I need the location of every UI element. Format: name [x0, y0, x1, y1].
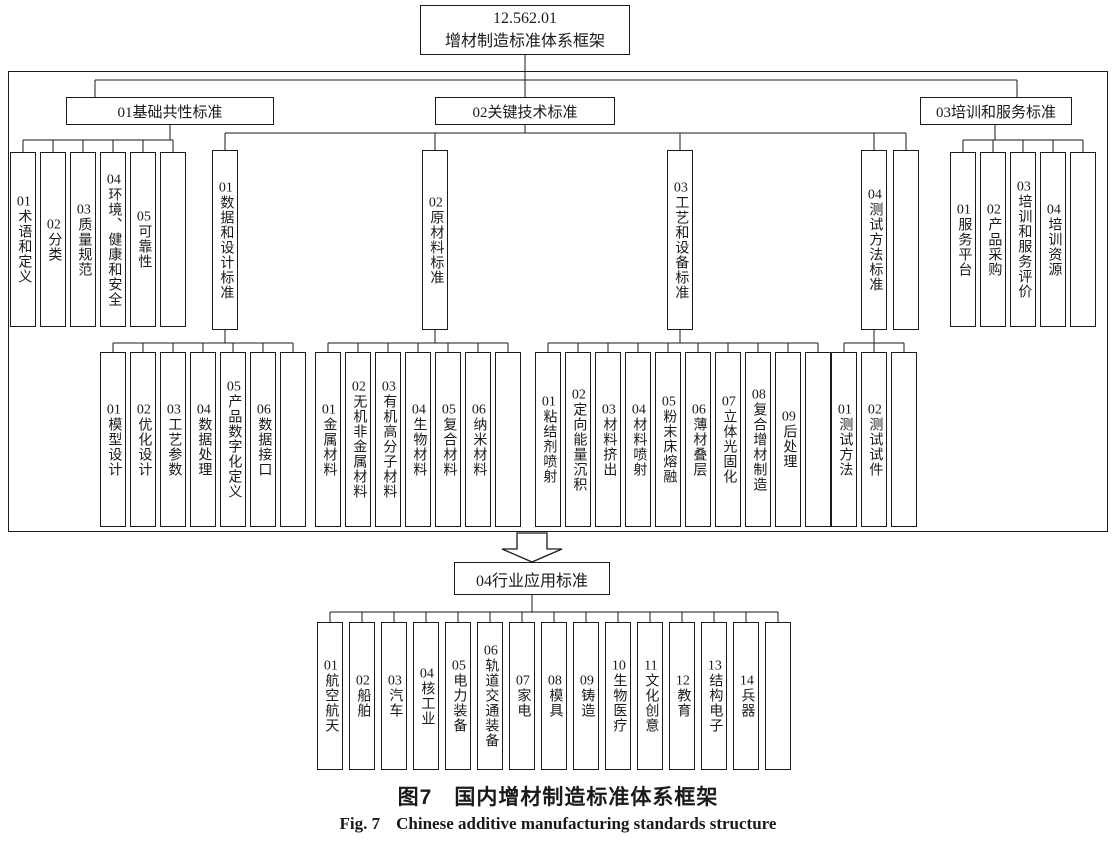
tree-node-box: 05复合材料: [435, 352, 461, 527]
node-number: 02: [428, 196, 443, 210]
node-label: 复合材料: [441, 417, 456, 477]
caption-chinese: 图7国内增材制造标准体系框架: [0, 781, 1116, 811]
tree-node-box: 02原材料标准: [422, 150, 448, 330]
node-label: 轨道交通装备: [483, 658, 498, 748]
tree-node-box: 09铸造: [573, 622, 599, 770]
node-label: 培训资源: [1046, 217, 1061, 277]
node-label: 立体光固化: [721, 409, 736, 484]
node-number: 05: [226, 380, 241, 394]
tree-node-box: 11文化创意: [637, 622, 663, 770]
node-number: 03: [673, 181, 688, 195]
node-label: 可靠性: [136, 224, 151, 269]
node-label: 无机非金属材料: [351, 394, 366, 499]
tree-node-box: 01粘结剂喷射: [535, 352, 561, 527]
tree-node-box: [280, 352, 306, 527]
tree-node-box: 07立体光固化: [715, 352, 741, 527]
node-number: 04: [867, 188, 882, 202]
node-label: 教育: [675, 688, 690, 718]
root-node: 12.562.01 增材制造标准体系框架: [420, 5, 630, 55]
node-label: 材料挤出: [601, 417, 616, 477]
node-label: 核工业: [419, 681, 434, 726]
node-label: 数据和设计标准: [218, 195, 233, 300]
node-label: 材料喷射: [631, 417, 646, 477]
tree-node-box: [765, 622, 791, 770]
node-label: 船舶: [355, 688, 370, 718]
node-number: 01: [956, 203, 971, 217]
tree-node-box: [891, 352, 917, 527]
node-number: 05: [441, 403, 456, 417]
tree-node-box: 04数据处理: [190, 352, 216, 527]
caption-zh-tag: 图7: [398, 786, 433, 809]
node-number: 01: [321, 403, 336, 417]
tree-node-box: 01模型设计: [100, 352, 126, 527]
node-number: 04: [411, 403, 426, 417]
node-label: 测试试件: [867, 417, 882, 477]
down-arrow-icon: [502, 533, 562, 562]
node-label: 薄材叠层: [691, 417, 706, 477]
root-code: 12.562.01: [493, 7, 557, 30]
caption-zh-title: 国内增材制造标准体系框架: [454, 786, 718, 809]
tree-node-box: 10生物医疗: [605, 622, 631, 770]
node-label: 家电: [515, 688, 530, 718]
node-label: 汽车: [387, 688, 402, 718]
tree-node-box: 01术语和定义: [10, 152, 36, 327]
tree-node-box: 08模具: [541, 622, 567, 770]
tree-node-box: 06数据接口: [250, 352, 276, 527]
node-label: 质量规范: [76, 217, 91, 277]
tree-node-box: 02分类: [40, 152, 66, 327]
tree-node-box: 06薄材叠层: [685, 352, 711, 527]
node-label: 复合增材制造: [751, 402, 766, 492]
node-label: 后处理: [781, 424, 796, 469]
node-number: 02: [355, 674, 370, 688]
node-label: 数据接口: [256, 417, 271, 477]
node-number: 06: [256, 403, 271, 417]
tree-node-box: 04生物材料: [405, 352, 431, 527]
node-label: 模具: [547, 688, 562, 718]
tree-node-box: 03有机高分子材料: [375, 352, 401, 527]
industry-application-header: 04行业应用标准: [454, 562, 610, 595]
node-label: 粘结剂喷射: [541, 409, 556, 484]
root-title: 增材制造标准体系框架: [445, 30, 605, 53]
tree-node-box: 04材料喷射: [625, 352, 651, 527]
tree-node-box: 05粉末床熔融: [655, 352, 681, 527]
node-label: 环境、健康和安全: [106, 187, 121, 307]
node-label: 测试方法标准: [867, 202, 882, 292]
node-number: 01: [106, 403, 121, 417]
node-number: 14: [739, 674, 754, 688]
tree-node-box: 05产品数字化定义: [220, 352, 246, 527]
node-number: 04: [106, 173, 121, 187]
node-label: 电力装备: [451, 673, 466, 733]
node-label: 工艺和设备标准: [673, 195, 688, 300]
tree-node-box: 05可靠性: [130, 152, 156, 327]
node-number: 09: [579, 674, 594, 688]
node-number: 02: [986, 203, 1001, 217]
tree-node-box: 05电力装备: [445, 622, 471, 770]
node-number: 06: [471, 403, 486, 417]
node-number: 05: [451, 659, 466, 673]
node-number: 03: [381, 380, 396, 394]
tree-node-box: 03汽车: [381, 622, 407, 770]
tree-node-box: [893, 150, 919, 330]
node-label: 服务平台: [956, 217, 971, 277]
tree-node-box: 01金属材料: [315, 352, 341, 527]
node-number: 04: [1046, 203, 1061, 217]
node-number: 12: [675, 674, 690, 688]
node-number: 01: [16, 195, 31, 209]
tree-node-box: 04培训资源: [1040, 152, 1066, 327]
tree-node-box: 12教育: [669, 622, 695, 770]
node-number: 13: [707, 659, 722, 673]
node-number: 09: [781, 410, 796, 424]
node-number: 01: [323, 659, 338, 673]
node-number: 03: [76, 203, 91, 217]
tree-node-box: [805, 352, 831, 527]
node-number: 08: [547, 674, 562, 688]
node-number: 04: [196, 403, 211, 417]
tree-node-box: [1070, 152, 1096, 327]
tree-node-box: 02船舶: [349, 622, 375, 770]
node-number: 02: [571, 388, 586, 402]
node-label: 分类: [46, 232, 61, 262]
tree-node-box: [160, 152, 186, 327]
node-number: 02: [46, 218, 61, 232]
tree-node-box: 02测试试件: [861, 352, 887, 527]
node-number: 02: [136, 403, 151, 417]
node-number: 07: [721, 395, 736, 409]
tree-node-box: [495, 352, 521, 527]
node-label: 纳米材料: [471, 417, 486, 477]
tree-node-box: 07家电: [509, 622, 535, 770]
tree-node-box: 02无机非金属材料: [345, 352, 371, 527]
node-label: 粉末床熔融: [661, 409, 676, 484]
branch-header-basic-common: 01基础共性标准: [66, 97, 274, 125]
node-number: 03: [1016, 180, 1031, 194]
caption-english: Fig. 7Chinese additive manufacturing sta…: [0, 814, 1116, 834]
node-label: 铸造: [579, 688, 594, 718]
node-number: 01: [218, 181, 233, 195]
node-label: 金属材料: [321, 417, 336, 477]
node-label: 培训和服务评价: [1016, 194, 1031, 299]
node-number: 01: [837, 403, 852, 417]
tree-node-box: 02产品采购: [980, 152, 1006, 327]
node-label: 定向能量沉积: [571, 402, 586, 492]
node-label: 生物材料: [411, 417, 426, 477]
node-label: 航空航天: [323, 673, 338, 733]
branch-header-key-technology: 02关键技术标准: [435, 97, 615, 125]
node-label: 产品采购: [986, 217, 1001, 277]
node-number: 01: [541, 395, 556, 409]
tree-node-box: 01数据和设计标准: [212, 150, 238, 330]
node-label: 生物医疗: [611, 673, 626, 733]
tree-node-box: 03工艺参数: [160, 352, 186, 527]
node-number: 04: [631, 403, 646, 417]
node-number: 07: [515, 674, 530, 688]
tree-node-box: 08复合增材制造: [745, 352, 771, 527]
figure-canvas: 12.562.01 增材制造标准体系框架 01基础共性标准 02关键技术标准 0…: [0, 0, 1116, 843]
tree-node-box: 06纳米材料: [465, 352, 491, 527]
node-label: 原材料标准: [428, 210, 443, 285]
node-number: 03: [601, 403, 616, 417]
tree-node-box: 14兵器: [733, 622, 759, 770]
node-number: 06: [483, 644, 498, 658]
node-label: 测试方法: [837, 417, 852, 477]
node-label: 术语和定义: [16, 209, 31, 284]
node-number: 05: [136, 210, 151, 224]
node-number: 03: [387, 674, 402, 688]
node-label: 优化设计: [136, 417, 151, 477]
node-label: 数据处理: [196, 417, 211, 477]
tree-node-box: 06轨道交通装备: [477, 622, 503, 770]
tree-node-box: 03工艺和设备标准: [667, 150, 693, 330]
caption-en-tag: Fig. 7: [340, 814, 381, 833]
node-number: 04: [419, 667, 434, 681]
tree-node-box: 01航空航天: [317, 622, 343, 770]
node-label: 有机高分子材料: [381, 394, 396, 499]
tree-node-box: 01服务平台: [950, 152, 976, 327]
node-label: 产品数字化定义: [226, 394, 241, 499]
node-label: 兵器: [739, 688, 754, 718]
node-label: 工艺参数: [166, 417, 181, 477]
tree-node-box: 13结构电子: [701, 622, 727, 770]
node-number: 03: [166, 403, 181, 417]
node-number: 11: [643, 659, 658, 673]
tree-node-box: 01测试方法: [831, 352, 857, 527]
tree-node-box: 02定向能量沉积: [565, 352, 591, 527]
node-number: 10: [611, 659, 626, 673]
node-number: 02: [351, 380, 366, 394]
node-number: 02: [867, 403, 882, 417]
node-number: 05: [661, 395, 676, 409]
caption-en-title: Chinese additive manufacturing standards…: [396, 814, 776, 833]
node-number: 06: [691, 403, 706, 417]
tree-node-box: 02优化设计: [130, 352, 156, 527]
tree-node-box: 04环境、健康和安全: [100, 152, 126, 327]
node-label: 模型设计: [106, 417, 121, 477]
tree-node-box: 03质量规范: [70, 152, 96, 327]
tree-node-box: 09后处理: [775, 352, 801, 527]
tree-node-box: 03培训和服务评价: [1010, 152, 1036, 327]
tree-node-box: 04核工业: [413, 622, 439, 770]
tree-node-box: 04测试方法标准: [861, 150, 887, 330]
node-label: 文化创意: [643, 673, 658, 733]
node-label: 结构电子: [707, 673, 722, 733]
branch-header-training-service: 03培训和服务标准: [920, 97, 1072, 125]
node-number: 08: [751, 388, 766, 402]
tree-node-box: 03材料挤出: [595, 352, 621, 527]
